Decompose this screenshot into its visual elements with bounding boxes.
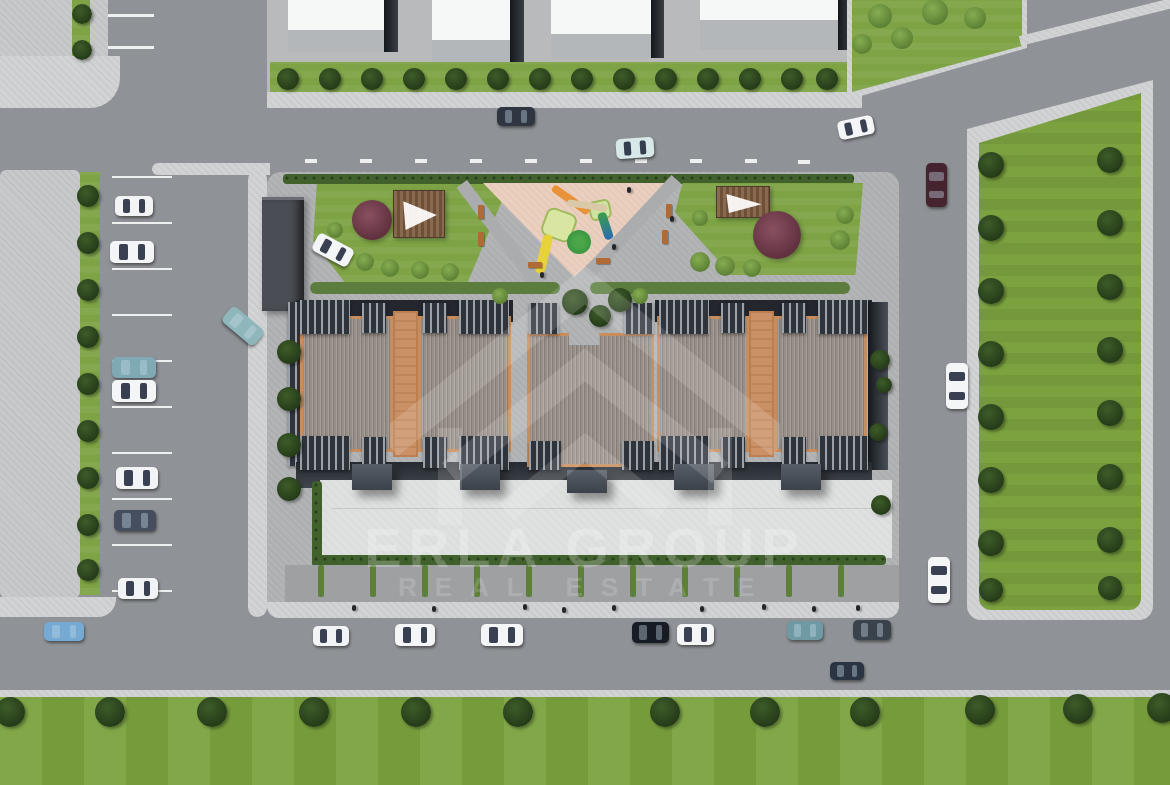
pergola-right bbox=[716, 186, 770, 218]
car-glass bbox=[335, 246, 347, 262]
car-glass bbox=[844, 122, 854, 137]
car-glass bbox=[70, 625, 76, 639]
tree bbox=[299, 697, 329, 727]
car-glass bbox=[124, 470, 132, 486]
tree bbox=[739, 68, 761, 90]
tree bbox=[1063, 694, 1093, 724]
tree bbox=[978, 215, 1004, 241]
car-glass bbox=[877, 623, 883, 637]
car-glass bbox=[143, 470, 150, 486]
tree bbox=[95, 697, 125, 727]
tree bbox=[277, 433, 301, 457]
car bbox=[112, 380, 156, 402]
bush bbox=[868, 4, 892, 28]
tree bbox=[978, 404, 1004, 430]
tree bbox=[403, 68, 425, 90]
car bbox=[116, 467, 158, 489]
car bbox=[112, 357, 156, 378]
building-wall-3 bbox=[551, 34, 651, 58]
car-glass bbox=[949, 372, 965, 381]
tree bbox=[77, 279, 99, 301]
tree bbox=[77, 420, 99, 442]
car bbox=[110, 241, 154, 263]
tree bbox=[870, 350, 890, 370]
car-glass bbox=[319, 238, 333, 254]
bush bbox=[922, 0, 948, 25]
building-wall-4 bbox=[700, 20, 838, 50]
car bbox=[946, 363, 968, 409]
car bbox=[44, 622, 84, 641]
bench bbox=[478, 232, 484, 246]
car-glass bbox=[837, 665, 844, 678]
bush bbox=[891, 27, 913, 49]
car-glass bbox=[861, 623, 869, 637]
bush bbox=[836, 206, 854, 224]
car-glass bbox=[52, 625, 60, 639]
car-glass bbox=[623, 141, 632, 156]
tree bbox=[978, 341, 1004, 367]
tree bbox=[1098, 576, 1122, 600]
tree bbox=[876, 377, 892, 393]
car-glass bbox=[489, 627, 497, 643]
bench bbox=[662, 230, 668, 244]
car bbox=[787, 621, 823, 640]
tree bbox=[445, 68, 467, 90]
car bbox=[481, 624, 523, 646]
pedestrian bbox=[670, 216, 674, 222]
car-glass bbox=[794, 624, 801, 638]
car-glass bbox=[320, 629, 327, 643]
car-glass bbox=[144, 581, 150, 596]
building-entrance bbox=[352, 464, 392, 490]
accent-tree bbox=[352, 200, 392, 240]
car-glass bbox=[640, 140, 647, 155]
balcony-slats bbox=[300, 436, 350, 470]
car bbox=[928, 557, 950, 603]
pedestrian bbox=[523, 604, 527, 610]
car-glass bbox=[139, 199, 145, 213]
car-glass bbox=[639, 625, 646, 640]
car-glass bbox=[138, 244, 145, 260]
building-shadow-1 bbox=[384, 0, 398, 52]
car-glass bbox=[810, 624, 816, 638]
car-glass bbox=[123, 199, 131, 213]
car-glass bbox=[949, 392, 965, 399]
car-glass bbox=[140, 383, 147, 399]
pedestrian bbox=[812, 606, 816, 612]
car-glass bbox=[684, 627, 691, 642]
bush bbox=[356, 253, 374, 271]
balcony-slats bbox=[362, 303, 386, 333]
road-marking bbox=[112, 314, 172, 316]
tree bbox=[1097, 400, 1123, 426]
tree bbox=[979, 578, 1003, 602]
pedestrian bbox=[432, 606, 436, 612]
tree bbox=[277, 477, 301, 501]
roof-block-2b bbox=[774, 316, 867, 452]
sidewalk-north bbox=[267, 92, 862, 108]
sidewalk-top-left-corner bbox=[0, 56, 120, 108]
sidewalk-diagonal-north bbox=[1019, 0, 1170, 46]
tree bbox=[319, 68, 341, 90]
tree bbox=[72, 40, 92, 60]
pavement-block-left bbox=[0, 170, 80, 598]
car-glass bbox=[505, 110, 513, 124]
tree bbox=[1097, 464, 1123, 490]
car bbox=[395, 624, 435, 646]
tree bbox=[1097, 147, 1123, 173]
road-marking bbox=[108, 14, 154, 17]
pedestrian bbox=[612, 244, 616, 250]
parking-divider-hedge bbox=[838, 565, 844, 597]
car bbox=[632, 622, 669, 643]
building-wall-1 bbox=[288, 30, 384, 52]
car-glass bbox=[929, 191, 944, 198]
tree bbox=[781, 68, 803, 90]
tree bbox=[77, 185, 99, 207]
car-glass bbox=[140, 360, 147, 375]
car-glass bbox=[852, 665, 857, 678]
road-marking bbox=[112, 544, 172, 546]
pedestrian bbox=[856, 605, 860, 611]
road-marking bbox=[112, 498, 172, 500]
tree bbox=[978, 278, 1004, 304]
road-marking bbox=[635, 159, 647, 163]
car bbox=[926, 163, 947, 207]
parking-divider-hedge bbox=[318, 565, 324, 597]
play-spiral-green bbox=[567, 230, 591, 254]
bush bbox=[327, 222, 343, 238]
car-glass bbox=[701, 627, 707, 642]
car bbox=[114, 510, 156, 531]
car bbox=[313, 626, 349, 646]
tree bbox=[503, 697, 533, 727]
car-glass bbox=[229, 312, 245, 328]
pergola-right-canopy bbox=[723, 191, 765, 215]
tree bbox=[850, 697, 880, 727]
car bbox=[497, 107, 535, 126]
tree bbox=[197, 697, 227, 727]
sidewalk-bottom-left bbox=[0, 597, 116, 617]
watermark-title: ERLA GROUP bbox=[335, 515, 835, 580]
tree bbox=[650, 697, 680, 727]
tree bbox=[613, 68, 635, 90]
car-glass bbox=[656, 625, 662, 640]
building-shadow-2 bbox=[510, 0, 524, 66]
garage-entry-building bbox=[262, 197, 304, 311]
tree bbox=[978, 467, 1004, 493]
road-marking bbox=[470, 159, 482, 163]
car-glass bbox=[403, 627, 411, 643]
car-glass bbox=[931, 586, 947, 593]
car bbox=[836, 114, 875, 140]
car bbox=[853, 620, 891, 640]
tree bbox=[401, 697, 431, 727]
road-marking bbox=[112, 176, 172, 178]
tree bbox=[72, 4, 92, 24]
car bbox=[615, 137, 654, 160]
road-marking bbox=[745, 159, 757, 163]
grass-strip-north bbox=[270, 62, 859, 92]
bush bbox=[830, 230, 850, 250]
tree bbox=[77, 373, 99, 395]
road-marking bbox=[305, 159, 317, 163]
tree bbox=[978, 152, 1004, 178]
car-glass bbox=[508, 627, 515, 643]
road-marking bbox=[360, 159, 372, 163]
tree bbox=[655, 68, 677, 90]
car-glass bbox=[122, 513, 130, 528]
car-glass bbox=[119, 244, 128, 260]
building-roof-3 bbox=[551, 0, 651, 34]
road-marking bbox=[112, 406, 172, 408]
balcony-slats bbox=[818, 436, 868, 470]
pergola-left-canopy bbox=[400, 197, 440, 233]
tree bbox=[487, 68, 509, 90]
tree bbox=[869, 423, 887, 441]
car-glass bbox=[929, 172, 944, 181]
pedestrian bbox=[762, 604, 766, 610]
car-glass bbox=[336, 629, 342, 643]
tree bbox=[1097, 527, 1123, 553]
road-marking bbox=[798, 160, 810, 164]
car bbox=[830, 662, 864, 680]
building-roof-1 bbox=[288, 0, 384, 30]
tree bbox=[965, 695, 995, 725]
tree bbox=[750, 697, 780, 727]
road-marking bbox=[690, 159, 702, 163]
watermark-subtitle: REAL ESTATE bbox=[335, 572, 835, 603]
tree bbox=[1097, 274, 1123, 300]
roof-block-1a bbox=[300, 316, 393, 452]
tree bbox=[697, 68, 719, 90]
sidewalk-parcel-south bbox=[267, 602, 899, 618]
tree bbox=[978, 530, 1004, 556]
pedestrian bbox=[562, 607, 566, 613]
tree bbox=[361, 68, 383, 90]
tree bbox=[1097, 210, 1123, 236]
car-glass bbox=[421, 627, 427, 643]
car-glass bbox=[126, 581, 134, 596]
tree bbox=[277, 340, 301, 364]
tree bbox=[1147, 693, 1170, 723]
road-marking bbox=[112, 268, 172, 270]
bush bbox=[852, 34, 872, 54]
pergola-left bbox=[393, 190, 445, 238]
tree bbox=[77, 514, 99, 536]
car-glass bbox=[121, 360, 130, 375]
car-glass bbox=[859, 119, 867, 134]
building-roof-4 bbox=[700, 0, 838, 20]
bush bbox=[964, 7, 986, 29]
balcony-slats bbox=[818, 300, 868, 334]
car-glass bbox=[141, 513, 148, 528]
pedestrian bbox=[352, 605, 356, 611]
tree bbox=[277, 387, 301, 411]
road-marking bbox=[112, 222, 172, 224]
site-plan-scene: ERLA GROUP REAL ESTATE bbox=[0, 0, 1170, 785]
road-marking bbox=[525, 159, 537, 163]
bench bbox=[478, 205, 484, 219]
tree bbox=[816, 68, 838, 90]
car bbox=[118, 578, 158, 599]
accent-tree bbox=[753, 211, 801, 259]
road-marking bbox=[108, 46, 154, 49]
pedestrian bbox=[700, 606, 704, 612]
tree bbox=[77, 232, 99, 254]
tree bbox=[77, 326, 99, 348]
car bbox=[115, 196, 153, 216]
car-glass bbox=[521, 110, 527, 124]
car bbox=[677, 624, 714, 645]
tree bbox=[529, 68, 551, 90]
tree bbox=[871, 495, 891, 515]
tree bbox=[571, 68, 593, 90]
pedestrian bbox=[627, 187, 631, 193]
road-marking bbox=[415, 159, 427, 163]
road-marking bbox=[580, 159, 592, 163]
balcony-slats bbox=[300, 300, 350, 334]
tree bbox=[1097, 337, 1123, 363]
building-shadow-3 bbox=[651, 0, 664, 58]
north-buildings-parcel bbox=[267, 0, 862, 108]
tree bbox=[77, 467, 99, 489]
car-glass bbox=[931, 566, 947, 575]
bush bbox=[692, 210, 708, 226]
tree bbox=[277, 68, 299, 90]
car-glass bbox=[121, 383, 130, 399]
road-marking bbox=[112, 452, 172, 454]
car-glass bbox=[243, 324, 257, 339]
watermark-logo bbox=[390, 255, 780, 525]
building-roof-2 bbox=[432, 0, 510, 40]
pedestrian bbox=[612, 605, 616, 611]
building-entrance bbox=[781, 464, 821, 490]
balcony-slats bbox=[782, 303, 806, 333]
tree bbox=[77, 559, 99, 581]
hedge-top bbox=[283, 174, 854, 184]
